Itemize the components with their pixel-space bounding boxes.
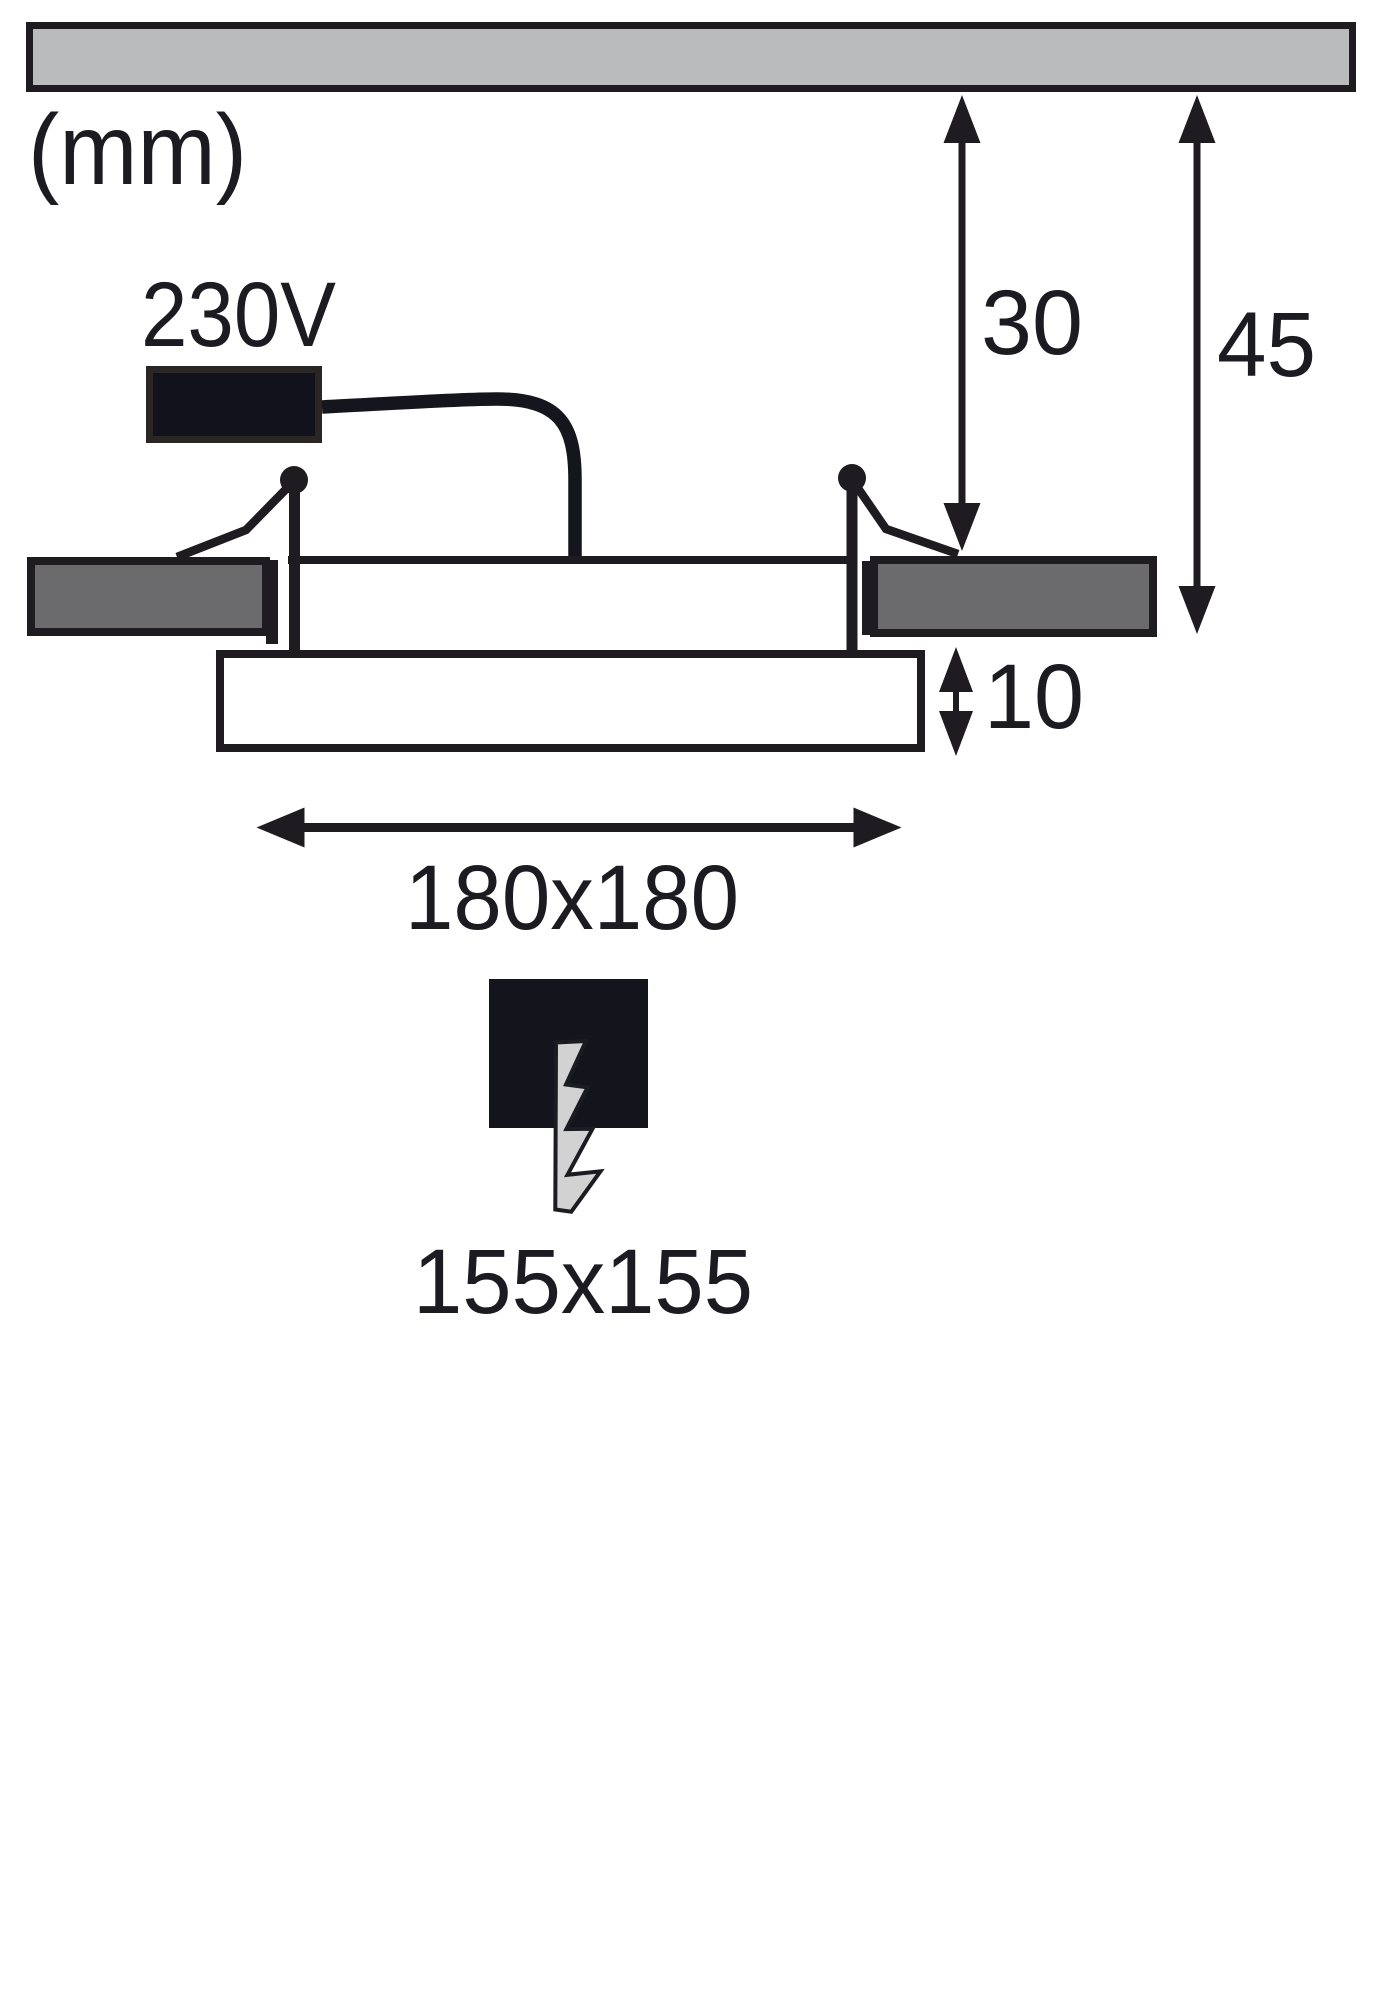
svg-text:45: 45 [1217, 294, 1316, 396]
svg-text:30: 30 [981, 272, 1083, 374]
svg-text:(mm): (mm) [28, 94, 247, 206]
svg-text:155x155: 155x155 [413, 1231, 753, 1333]
svg-text:230V: 230V [141, 264, 336, 366]
svg-text:10: 10 [984, 646, 1084, 748]
svg-text:180x180: 180x180 [405, 847, 739, 949]
